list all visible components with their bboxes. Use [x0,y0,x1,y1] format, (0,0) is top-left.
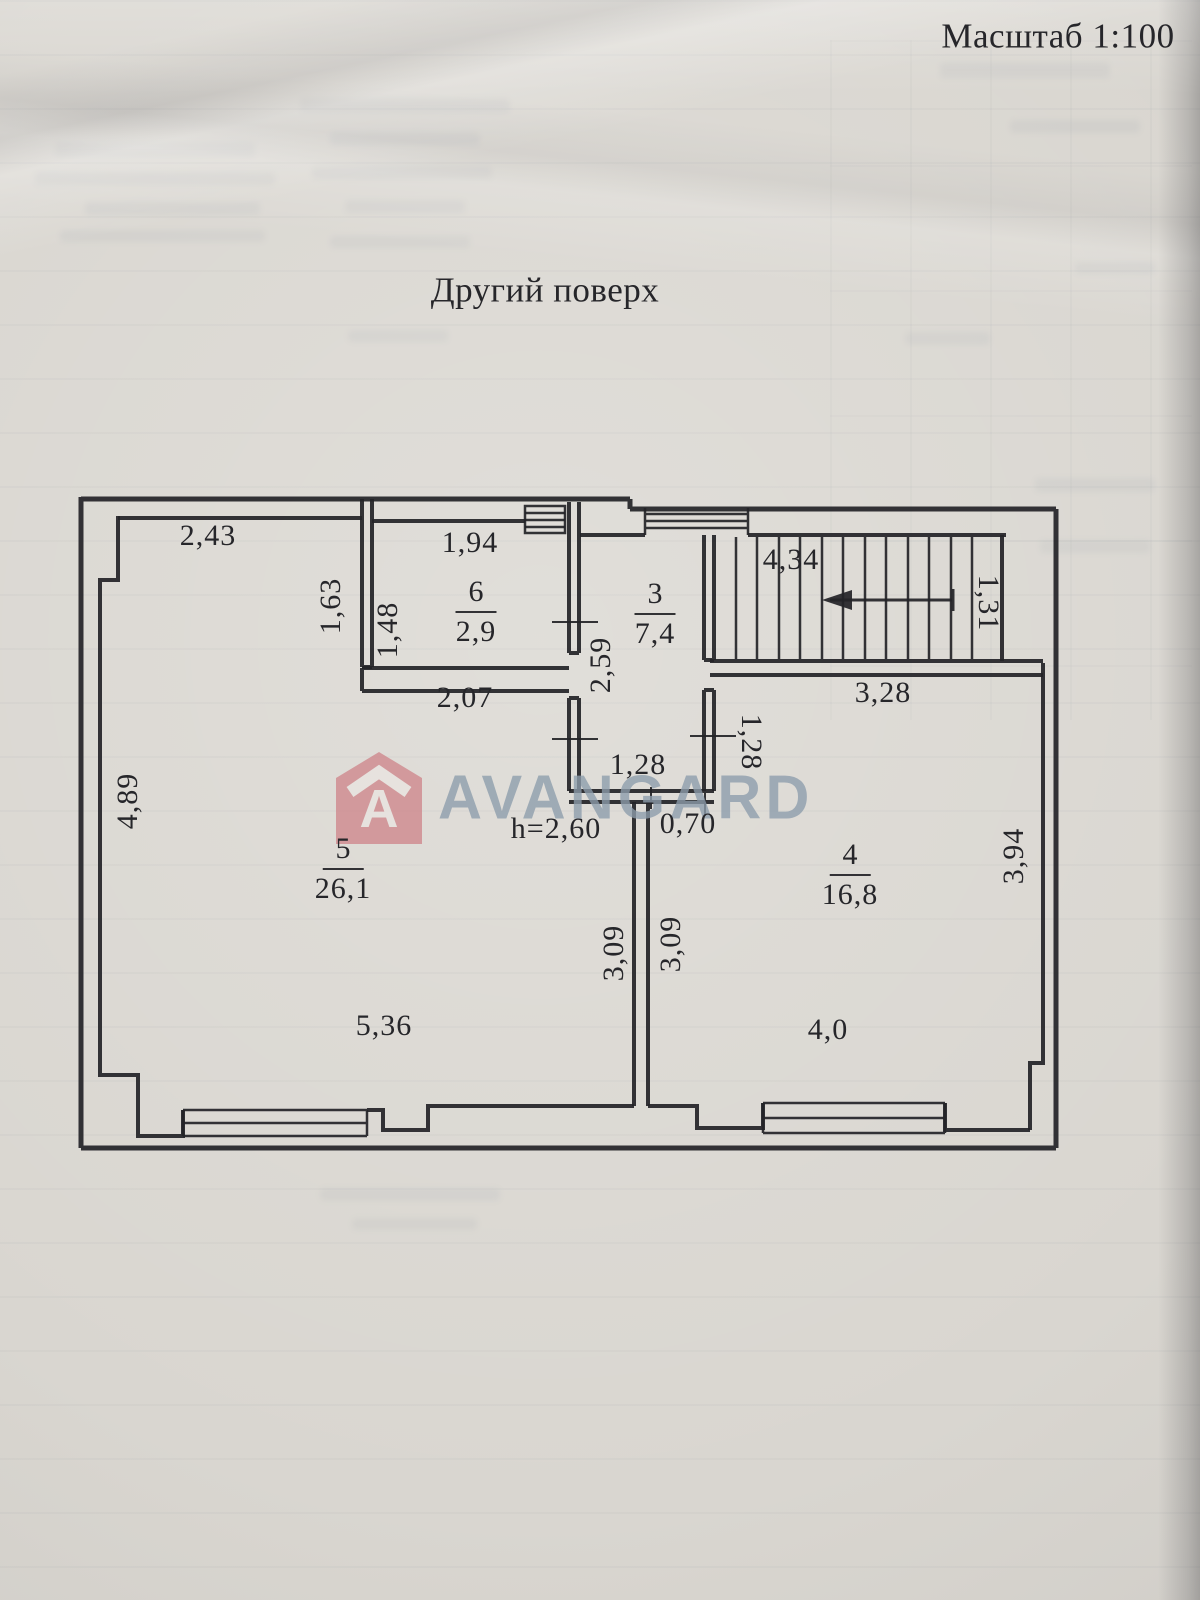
room-label-5: 5 26,1 [315,834,372,904]
stair-direction-arrow [822,589,953,611]
dim-room4-right-height: 3,94 [999,828,1029,885]
room-label-6: 6 2,9 [456,577,497,647]
room-area: 7,4 [635,615,676,649]
dim-door-width: 0,70 [660,809,717,839]
room-area: 26,1 [315,870,372,904]
dim-vestibule-width: 1,28 [610,750,667,780]
room-label-4: 4 16,8 [822,840,879,910]
page-title: Другий поверх [431,273,660,308]
dim-room4-top-width: 3,28 [855,678,912,708]
dim-room5-upper-right-height: 1,63 [316,578,346,635]
dim-hall-height: 2,59 [586,637,616,694]
scale-note: Масштаб 1:100 [941,19,1174,54]
dim-room4-bottom-width: 4,0 [808,1015,849,1045]
dim-room4-notch-height: 1,28 [736,714,766,771]
dim-room5-bottom-width: 5,36 [356,1011,413,1041]
scanned-floor-plan-page: Масштаб 1:100 Другий поверх A AVANGARD 6… [0,0,1200,1600]
room-number: 3 [635,579,676,615]
room-number: 6 [456,577,497,613]
dim-room5-right-height: 3,09 [599,925,629,982]
dim-stairs-length: 4,34 [763,545,820,575]
room-number: 4 [830,840,871,876]
dim-room5-left-height: 4,89 [113,773,143,830]
room-area: 2,9 [456,613,497,647]
room-area: 16,8 [822,876,879,910]
dim-room6-top-width: 1,94 [442,528,499,558]
dim-top-left-width: 2,43 [180,521,237,551]
room-label-3: 3 7,4 [635,579,676,649]
room-number: 5 [323,834,364,870]
dim-room6-left-height: 1,48 [373,602,403,659]
floor-plan-drawing [0,0,1200,1600]
dim-stairs-width: 1,31 [973,575,1003,632]
dim-room6-bottom-width: 2,07 [437,683,494,713]
ceiling-height-note: h=2,60 [511,814,601,844]
dim-room4-left-height: 3,09 [656,916,686,973]
